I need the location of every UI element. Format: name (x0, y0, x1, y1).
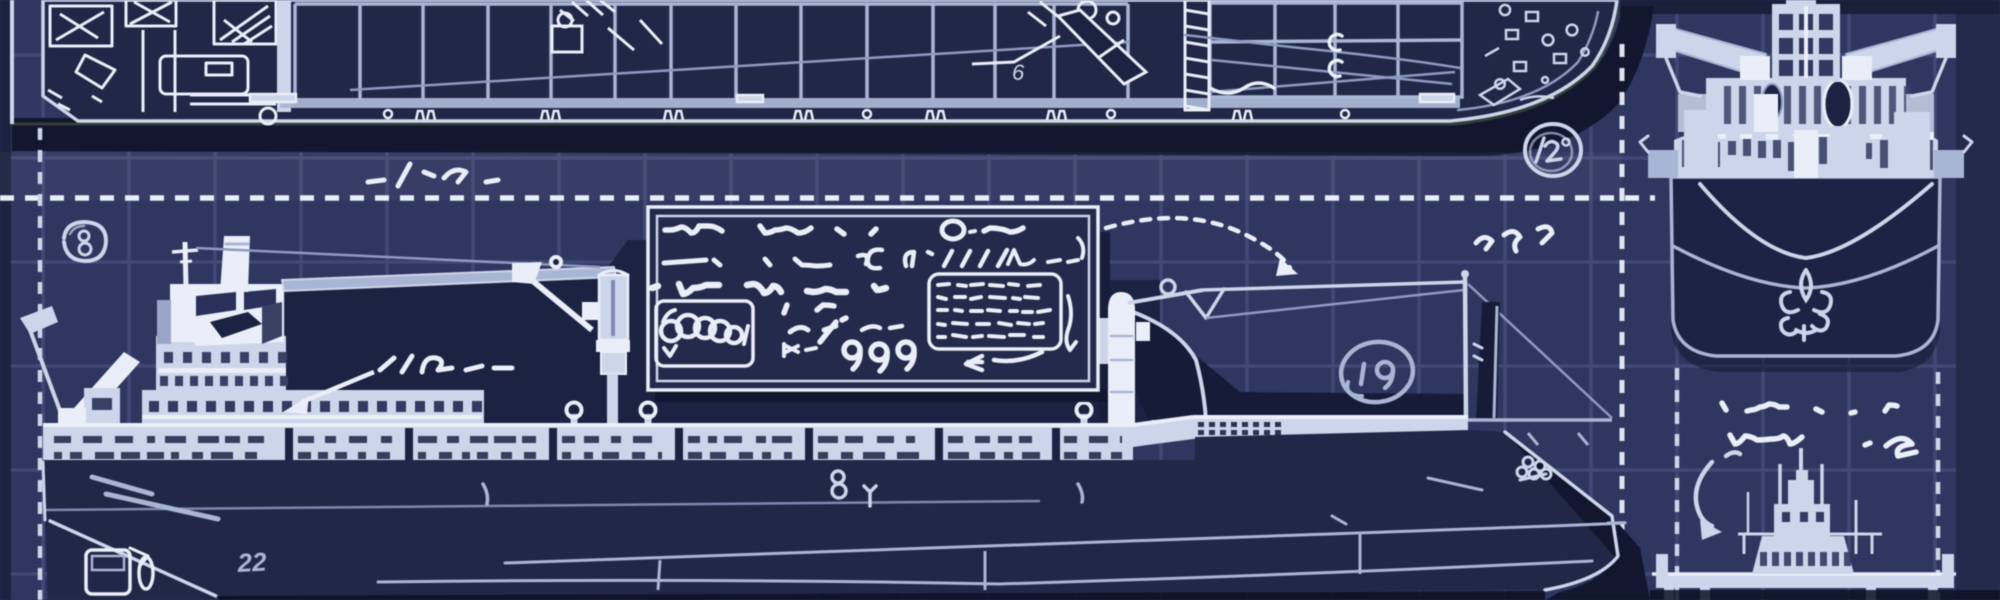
svg-text:6: 6 (1012, 60, 1025, 85)
svg-text:22: 22 (236, 546, 268, 578)
